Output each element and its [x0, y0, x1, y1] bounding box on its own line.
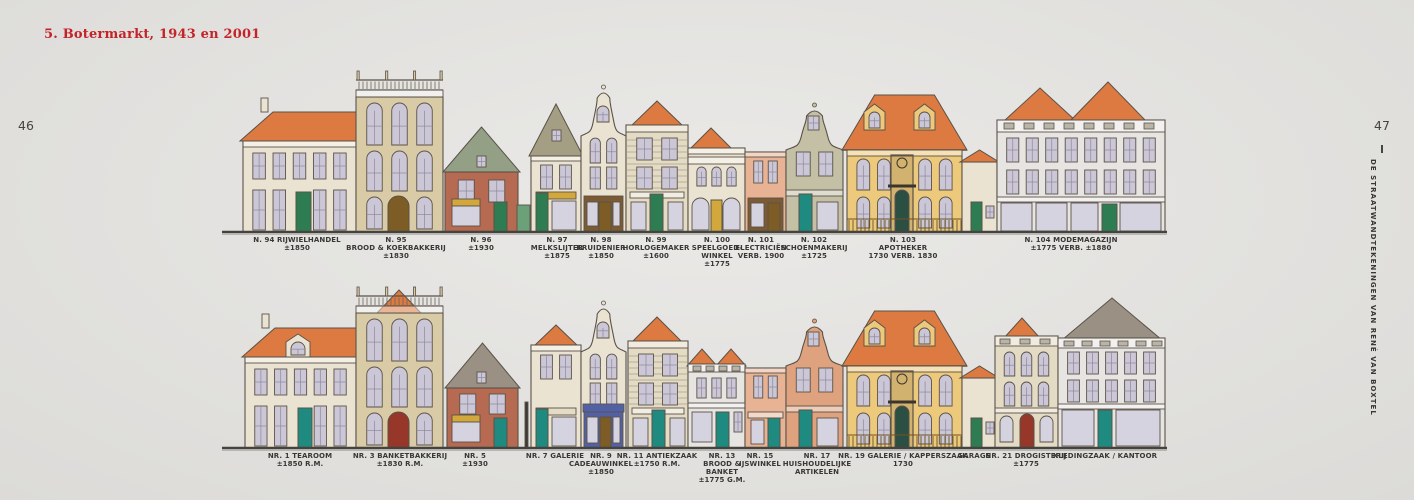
building-label: N. 98 KRUIDENIER ±1850: [576, 236, 625, 260]
building-label: N. 101 ELECTRICIËN VERB. 1900: [735, 236, 786, 260]
building-n103: [842, 95, 967, 232]
building-label: NR. 3 BANKETBAKKERIJ ±1830 R.M.: [353, 452, 447, 468]
building-label: NR. 19 GALERIE / KAPPERSZAAK 1730: [838, 452, 968, 468]
building-garage: [960, 366, 999, 448]
building-nr13: [687, 349, 746, 448]
building-n99: [626, 101, 688, 232]
building-label: KLEDINGZAAK / KANTOOR: [1053, 452, 1157, 460]
building-label: N. 102 SCHOENMAKERIJ ±1725: [780, 236, 847, 260]
building-nr7: [531, 325, 581, 448]
building-label: NR. 15 IJSWINKEL: [739, 452, 781, 468]
building-nr21: [995, 318, 1058, 448]
building-n96: [443, 127, 520, 232]
building-label: N. 104 MODEMAGAZIJN ±1775 VERB. ±1880: [1024, 236, 1117, 252]
building-label: N. 94 RIJWIELHANDEL ±1850: [253, 236, 340, 252]
building-kleding: [1058, 298, 1165, 448]
building-label: NR. 11 ANTIEKZAAK ±1750 R.M.: [617, 452, 698, 468]
book-spread: 5. Botermarkt, 1943 en 2001 46 47 DE STR…: [0, 0, 1414, 500]
building-nr9: [581, 301, 626, 448]
building-nr3: [356, 287, 443, 448]
building-nr19: [842, 311, 967, 448]
building-n100: [688, 128, 745, 232]
building-n98: [581, 85, 626, 232]
building-n104: [997, 82, 1165, 232]
building-conn: [960, 150, 999, 232]
building-nr17: [786, 319, 843, 448]
building-nr11: [628, 317, 688, 448]
building-n101: [745, 152, 786, 232]
building-n94: [240, 98, 356, 232]
building-label: N. 103 APOTHEKER 1730 VERB. 1830: [869, 236, 938, 260]
building-label: N. 96 ±1930: [468, 236, 494, 252]
building-n95: [356, 71, 443, 232]
building-nr5: [445, 343, 520, 448]
building-label: N. 97 MELKSLIJTER ±1875: [531, 236, 583, 260]
building-nr15: [745, 368, 786, 448]
building-label: NR. 1 TEAROOM ±1850 R.M.: [268, 452, 332, 468]
building-n102: [786, 103, 843, 232]
building-label: N. 99 HORLOGEMAKER ±1600: [622, 236, 689, 260]
building-n97: [529, 104, 583, 232]
building-label: NR. 5 ±1930: [462, 452, 488, 468]
building-label: N. 95 BROOD & KOEKBAKKERIJ ±1830: [346, 236, 446, 260]
building-nr1: [242, 314, 356, 448]
